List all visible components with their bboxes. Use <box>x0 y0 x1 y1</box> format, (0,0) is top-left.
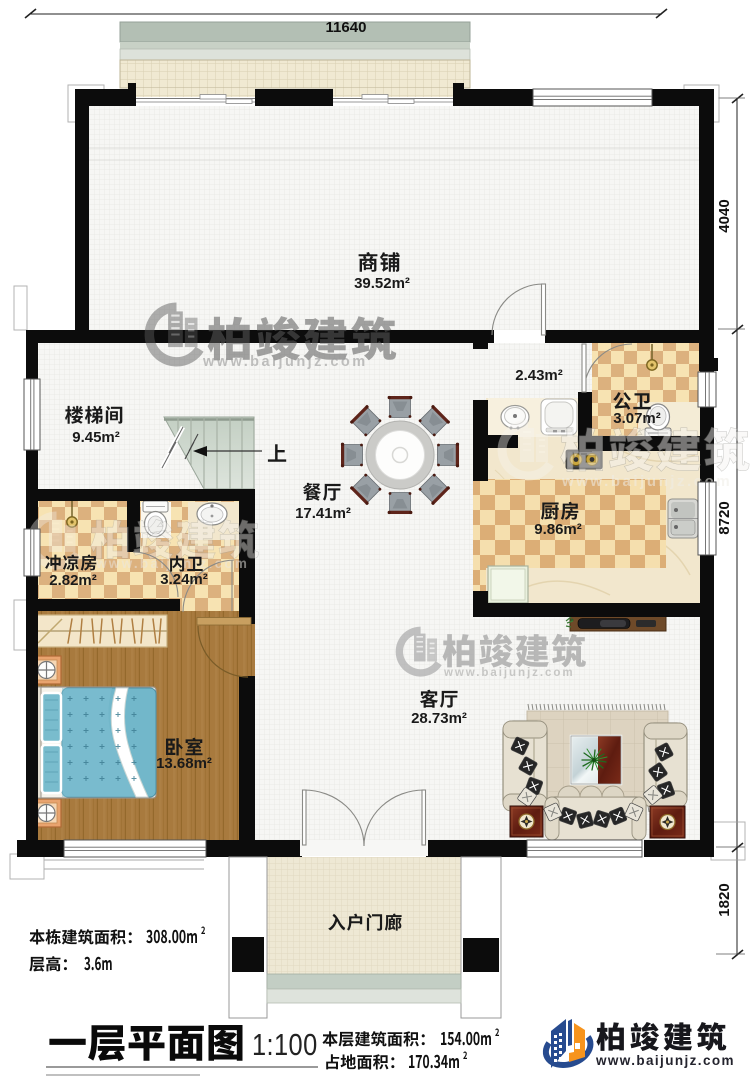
svg-text:1820: 1820 <box>716 883 733 916</box>
svg-text:8720: 8720 <box>716 501 733 534</box>
svg-text:11640: 11640 <box>326 19 367 36</box>
svg-text:2.43m²: 2.43m² <box>515 367 563 384</box>
svg-text:www.baijunjz.com: www.baijunjz.com <box>202 354 368 370</box>
svg-text:13.68m²: 13.68m² <box>156 755 212 772</box>
svg-text:4040: 4040 <box>716 199 733 232</box>
svg-text:3.24m²: 3.24m² <box>160 571 208 588</box>
svg-text:2.82m²: 2.82m² <box>49 572 97 589</box>
svg-text:9.86m²: 9.86m² <box>534 521 582 538</box>
svg-text:www.baijunjz.com: www.baijunjz.com <box>595 1053 735 1068</box>
svg-text:39.52m²: 39.52m² <box>354 275 410 292</box>
svg-text:www.baijunjz.com: www.baijunjz.com <box>443 667 575 679</box>
svg-text:17.41m²: 17.41m² <box>295 505 351 522</box>
svg-text:1:100: 1:100 <box>252 1028 318 1063</box>
svg-text:www.baijunjz.com: www.baijunjz.com <box>95 556 249 571</box>
svg-text:9.45m²: 9.45m² <box>72 429 120 446</box>
svg-text:28.73m²: 28.73m² <box>411 710 467 727</box>
svg-text:3.07m²: 3.07m² <box>613 410 661 427</box>
